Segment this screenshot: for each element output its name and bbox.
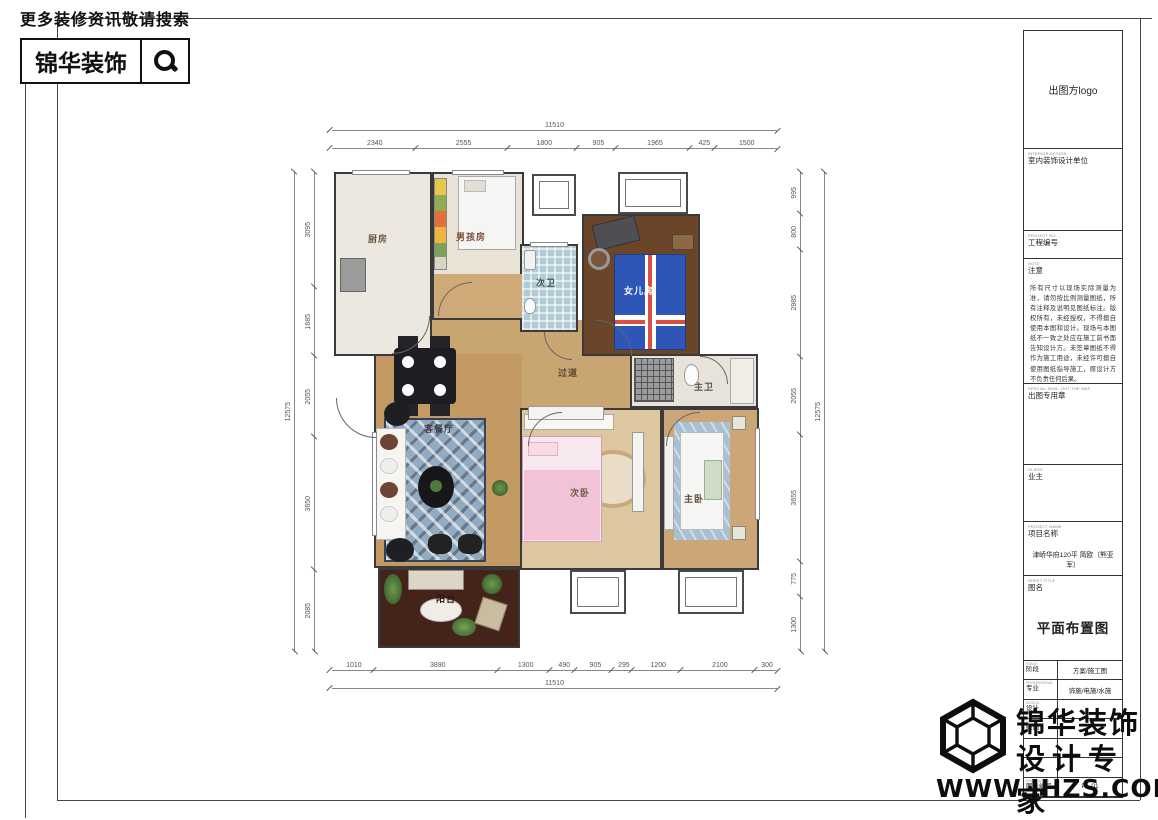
- tb-seal: SPECIAL SEAL, OUT THE MAP 出图专用章: [1024, 384, 1122, 465]
- boys-wardrobe: [434, 178, 447, 270]
- master-pillows: [704, 460, 722, 500]
- bedroom2-dresser: [632, 432, 644, 512]
- dim-bottom-total: 11510: [332, 676, 777, 689]
- dimension-segment: 2340: [332, 136, 418, 149]
- kitchen-counter: [340, 258, 366, 292]
- label-boys-room: 男孩房: [456, 230, 486, 243]
- label-kitchen: 厨房: [368, 232, 388, 245]
- bath2-toilet: [524, 298, 536, 314]
- frame-left-inner-line: [57, 18, 58, 800]
- dimension-segment: 2100: [683, 658, 757, 671]
- tb-client-zh: 业主: [1028, 472, 1118, 482]
- frame-left-outer-line: [25, 40, 26, 818]
- dim-top-segments: 23402555180090519654251500: [332, 136, 777, 149]
- dimension-segment: 3655: [788, 435, 801, 562]
- tb-note: NOTE 注意 所有尺寸以现场实际测量为准，请勿按比例测量图纸，所有注释及说明见…: [1024, 259, 1122, 384]
- balcony-plant-2: [482, 574, 502, 594]
- dimension-segment: 3650: [302, 437, 315, 569]
- tb-interior-design: INTERIOR DESIGN 室内装饰设计单位: [1024, 149, 1122, 231]
- dining-plate-1: [402, 356, 414, 368]
- master-bath-vanity: [730, 358, 754, 404]
- coffee-table-plant: [430, 480, 442, 492]
- dimension-segment: 2055: [302, 356, 315, 437]
- dimension-segment: 995: [788, 172, 801, 214]
- frame-right-line: [1140, 18, 1141, 800]
- dimension-segment: 1800: [510, 136, 579, 149]
- search-icon: [142, 40, 188, 82]
- dimension-segment: 775: [788, 562, 801, 597]
- tb-client: CLIENT 业主: [1024, 465, 1122, 522]
- tb-project-name: PROJECT NAME 项目名称 津峤华府120平 简欧（熊亚军）: [1024, 522, 1122, 576]
- tb-sheet-title-value: 平面布置图: [1028, 617, 1118, 637]
- tb-project-name-zh: 项目名称: [1028, 529, 1118, 539]
- dining-plate-2: [434, 356, 446, 368]
- armchair-top: [384, 402, 410, 426]
- dim-bottom-segments: 10103890130049090529512002100300: [332, 658, 777, 671]
- dimension-segment: 2085: [302, 570, 315, 652]
- titleblock-row: PROFESSIONAL 专业 饰施/电施/水施: [1024, 680, 1122, 699]
- living-left-window: [372, 432, 377, 536]
- tb-project-name-value: 津峤华府120平 简欧（熊亚军）: [1028, 549, 1118, 569]
- frame-top-line: [57, 18, 1152, 19]
- label-master-bath: 主卫: [694, 380, 714, 393]
- bedroom2-blanket: [524, 470, 600, 540]
- label-master-bedroom: 主卧: [684, 492, 704, 505]
- hall-cabinet: [528, 406, 604, 420]
- label-bath2: 次卫: [536, 276, 556, 289]
- dimension-segment: 2985: [788, 250, 801, 356]
- tb-note-zh: 注意: [1028, 266, 1118, 276]
- dim-left-segments: 30951685205536502085: [302, 172, 315, 652]
- master-right-window: [755, 428, 760, 520]
- dimension-segment: 1500: [717, 136, 777, 149]
- tb-seal-zh: 出图专用章: [1028, 391, 1118, 401]
- boys-top-window: [452, 170, 504, 175]
- dimension-segment: 905: [577, 658, 614, 671]
- living-plant: [492, 480, 508, 496]
- watermark-url: WWW.JHZS.COM: [936, 774, 1158, 803]
- balcony-plant-1: [384, 574, 402, 604]
- dimension-segment: 1965: [618, 136, 692, 149]
- balcony-plant-3: [452, 618, 476, 636]
- dimension-segment: 1300: [788, 597, 801, 652]
- bedroom2-bay-window: [570, 570, 626, 614]
- floorplan-sheet: { "header": { "slogan": "更多装修资讯敬请搜索", "b…: [0, 0, 1158, 818]
- tb-sheet-title: SHEET TITLE 图名 平面布置图: [1024, 576, 1122, 661]
- tb-note-text: 所有尺寸以现场实际测量为准，请勿按比例测量图纸，所有注释及说明见图纸标注。版权所…: [1028, 276, 1118, 385]
- dimension-segment: 3890: [376, 658, 500, 671]
- sofa-pillow-4: [380, 506, 398, 522]
- tb-project-no: PROJECT NO. 工程编号: [1024, 231, 1122, 259]
- brand-name: 锦华装饰: [22, 40, 142, 82]
- top-shaft-box: [532, 174, 576, 216]
- titleblock-row: STAGE 阶段 方案/施工图: [1024, 661, 1122, 680]
- master-bay-window: [678, 570, 744, 614]
- jhzs-cube-logo: [936, 698, 1010, 774]
- label-hallway: 过道: [558, 366, 578, 379]
- dim-right-segments: 9958002985205536557751300: [788, 172, 801, 652]
- sofa-pillow-2: [380, 458, 398, 474]
- sofa-pillow-1: [380, 434, 398, 450]
- brand-logo-box: 锦华装饰: [20, 38, 190, 84]
- master-nightstand-bottom: [732, 526, 746, 540]
- bath2-sink: [524, 250, 536, 270]
- dimension-segment: 3095: [302, 172, 315, 287]
- dim-right-total: 12575: [812, 172, 825, 652]
- label-balcony: 阳台: [436, 592, 456, 605]
- tb-logo-text: 出图方logo: [1049, 82, 1098, 97]
- ottoman-1: [428, 534, 452, 554]
- dimension-segment: 300: [757, 658, 777, 671]
- watermark: 锦华装饰 设计专家 WWW.JHZS.COM: [936, 698, 1158, 810]
- dimension-segment: 800: [788, 214, 801, 250]
- kitchen-top-window: [352, 170, 410, 175]
- dimension-segment: 1685: [302, 287, 315, 356]
- label-living-dining: 客餐厅: [424, 422, 454, 435]
- label-girls-room: 女儿房: [624, 284, 654, 297]
- girls-rug: [588, 248, 610, 270]
- dimension-segment: 1010: [332, 658, 376, 671]
- tb-sheet-title-zh: 图名: [1028, 583, 1118, 593]
- master-nightstand-top: [732, 416, 746, 430]
- sofa-pillow-3: [380, 482, 398, 498]
- tb-interior-design-zh: 室内装饰设计单位: [1028, 156, 1118, 166]
- dimension-segment: 1300: [500, 658, 552, 671]
- dimension-segment: 2055: [788, 357, 801, 435]
- armchair-bottom: [386, 538, 414, 562]
- title-block: 出图方logo INTERIOR DESIGN 室内装饰设计单位 PROJECT…: [1023, 30, 1123, 798]
- girls-nightstand: [672, 234, 694, 250]
- dining-plate-4: [434, 384, 446, 396]
- tb-project-no-zh: 工程编号: [1028, 238, 1118, 248]
- dim-top-total: 11510: [332, 118, 777, 131]
- dim-left-total: 12575: [282, 172, 295, 652]
- floor-plan: 厨房 男孩房 次卫 女儿房 过道 主卫 客餐厅 次卧 主卧 阳台: [332, 170, 777, 655]
- bath2-top-window: [530, 242, 568, 247]
- tb-logo-box: 出图方logo: [1024, 31, 1122, 149]
- girls-bay-window: [618, 172, 688, 214]
- master-bath-shower: [634, 358, 674, 402]
- master-desk: [664, 436, 674, 530]
- ottoman-2: [458, 534, 482, 554]
- boys-bed-pillow: [464, 180, 486, 192]
- dining-chair-4: [430, 402, 450, 416]
- dimension-segment: 2555: [418, 136, 510, 149]
- balcony-cabinet: [408, 570, 464, 590]
- dining-plate-3: [402, 384, 414, 396]
- header-slogan: 更多装修资讯敬请搜索: [20, 6, 190, 30]
- entry-door-arc: [336, 398, 376, 438]
- dimension-segment: 1200: [634, 658, 683, 671]
- dimension-segment: 905: [579, 136, 618, 149]
- label-bedroom2: 次卧: [570, 486, 590, 499]
